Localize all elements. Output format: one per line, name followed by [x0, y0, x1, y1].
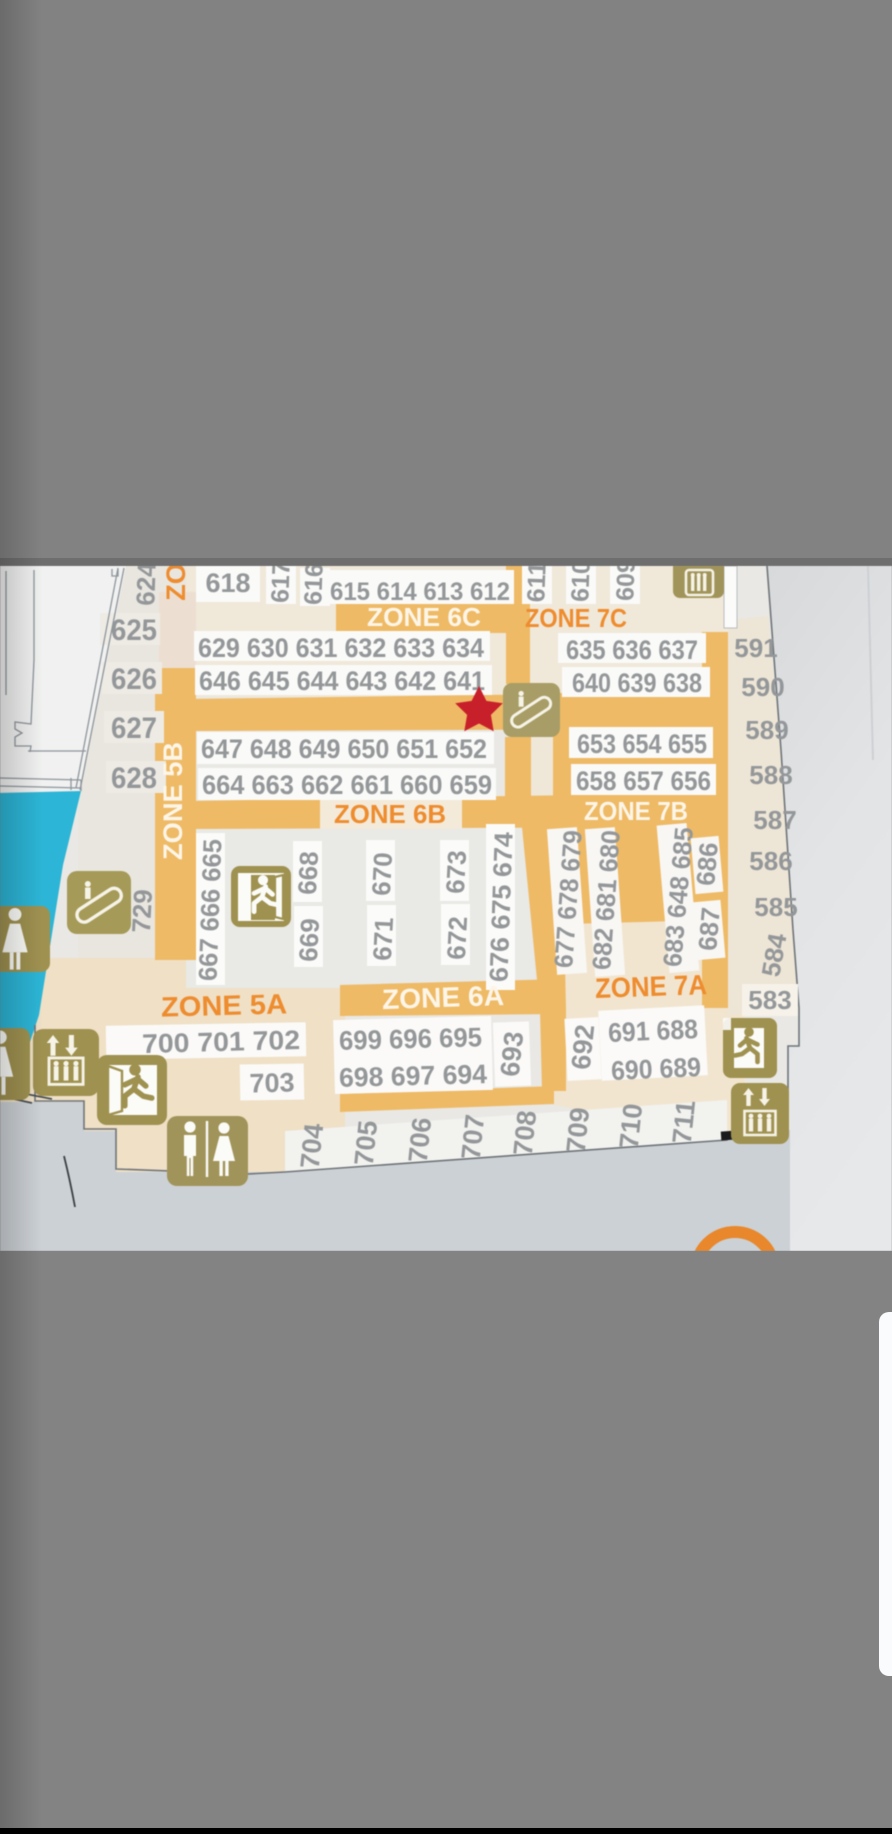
svg-text:664 663 662 661 660 659: 664 663 662 661 660 659: [202, 770, 492, 800]
svg-text:707: 707: [456, 1113, 491, 1161]
svg-text:625: 625: [111, 614, 157, 647]
svg-text:646 645 644 643 642 641: 646 645 644 643 642 641: [199, 666, 485, 696]
svg-text:691 688: 691 688: [607, 1014, 698, 1048]
svg-text:589: 589: [745, 715, 788, 745]
svg-text:ZONE 7C: ZONE 7C: [525, 603, 627, 633]
svg-text:676 675 674: 676 675 674: [483, 831, 518, 983]
svg-text:690 689: 690 689: [610, 1052, 701, 1086]
svg-text:629 630 631 632 633 634: 629 630 631 632 633 634: [198, 633, 484, 663]
svg-text:ZONE 6C: ZONE 6C: [367, 602, 481, 632]
svg-text:704: 704: [295, 1122, 330, 1170]
svg-text:700 701 702: 700 701 702: [142, 1025, 301, 1059]
svg-text:686: 686: [690, 841, 724, 887]
svg-text:711: 711: [667, 1099, 701, 1145]
svg-text:671: 671: [367, 917, 399, 962]
svg-text:627: 627: [111, 712, 157, 745]
svg-text:ZONE 5B: ZONE 5B: [158, 742, 188, 860]
svg-text:669: 669: [293, 918, 325, 963]
svg-text:710: 710: [614, 1102, 649, 1150]
svg-text:591: 591: [734, 633, 777, 663]
svg-text:708: 708: [508, 1109, 543, 1157]
svg-text:667 666 665: 667 666 665: [193, 839, 228, 982]
svg-text:585: 585: [754, 892, 797, 922]
svg-text:590: 590: [741, 672, 784, 702]
svg-text:583: 583: [748, 985, 791, 1015]
svg-text:587: 587: [753, 805, 796, 835]
svg-text:653 654 655: 653 654 655: [577, 729, 707, 759]
svg-text:687: 687: [692, 906, 726, 952]
svg-text:672: 672: [441, 916, 473, 961]
svg-text:ZONE 6A: ZONE 6A: [381, 980, 504, 1015]
svg-text:703: 703: [249, 1067, 295, 1098]
svg-text:709: 709: [561, 1106, 596, 1154]
svg-text:610: 610: [566, 566, 595, 602]
svg-text:706: 706: [403, 1116, 438, 1164]
svg-text:698 697 694: 698 697 694: [339, 1059, 488, 1093]
svg-text:692: 692: [566, 1023, 601, 1071]
svg-text:668: 668: [292, 851, 324, 896]
svg-text:699 696 695: 699 696 695: [339, 1022, 483, 1056]
svg-text:ZONE 7B: ZONE 7B: [584, 796, 688, 826]
svg-text:658 657 656: 658 657 656: [576, 766, 711, 796]
svg-text:628: 628: [111, 762, 157, 795]
svg-text:693: 693: [495, 1030, 530, 1078]
svg-text:617: 617: [266, 566, 295, 603]
svg-text:ZO: ZO: [161, 566, 191, 601]
svg-text:673: 673: [440, 850, 472, 895]
svg-text:586: 586: [749, 846, 792, 876]
svg-text:609: 609: [611, 566, 640, 601]
svg-text:ZONE 5A: ZONE 5A: [161, 988, 288, 1022]
svg-text:616: 616: [299, 566, 328, 605]
svg-text:705: 705: [349, 1119, 384, 1167]
svg-text:635 636 637: 635 636 637: [566, 635, 698, 665]
svg-text:670: 670: [366, 852, 398, 897]
svg-text:640 639 638: 640 639 638: [572, 668, 702, 698]
svg-text:ZONE 7A: ZONE 7A: [594, 969, 707, 1004]
svg-text:624: 624: [130, 566, 162, 606]
svg-text:618: 618: [205, 568, 250, 598]
svg-text:611: 611: [522, 566, 551, 603]
svg-text:ZONE 6B: ZONE 6B: [334, 799, 446, 829]
svg-text:647 648 649 650 651 652: 647 648 649 650 651 652: [201, 734, 487, 764]
svg-text:588: 588: [749, 760, 792, 790]
svg-text:626: 626: [111, 663, 157, 696]
